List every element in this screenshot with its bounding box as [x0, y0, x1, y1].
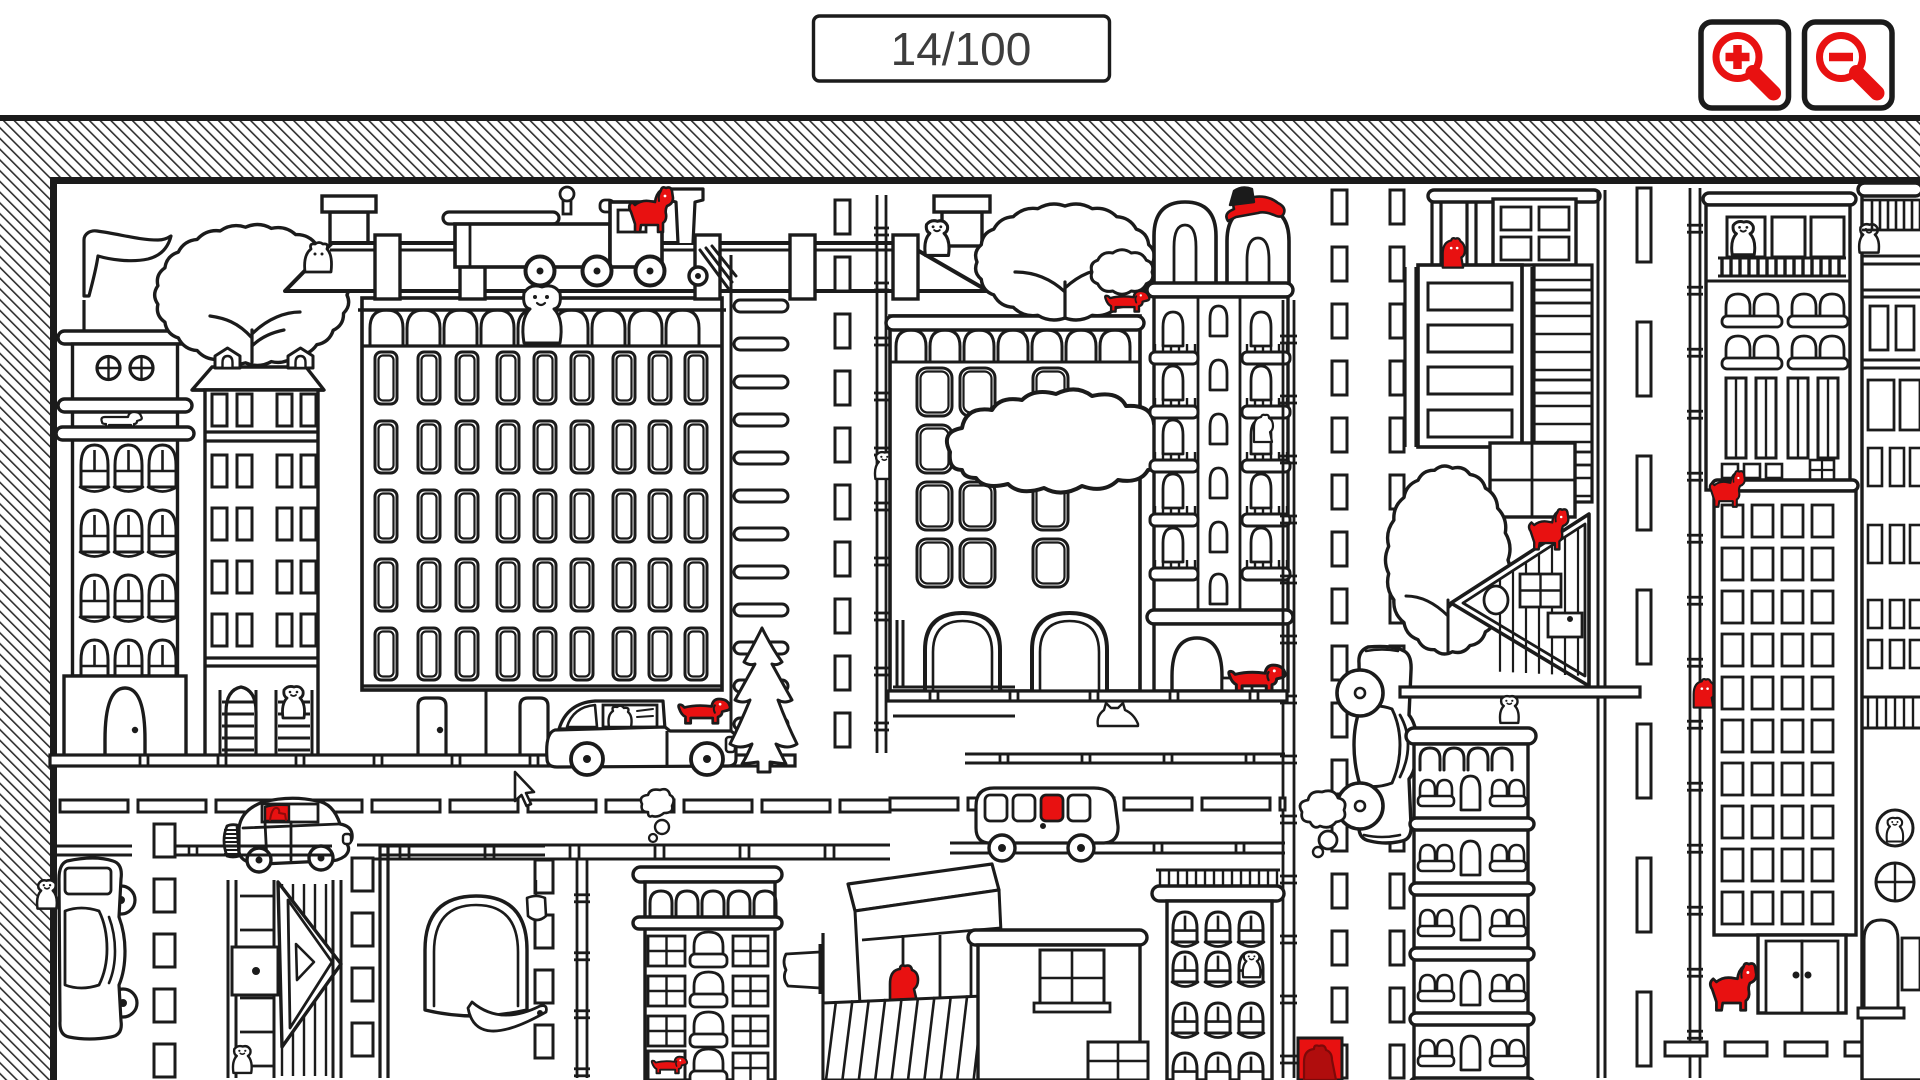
svg-text:14/100: 14/100 [891, 23, 1032, 75]
